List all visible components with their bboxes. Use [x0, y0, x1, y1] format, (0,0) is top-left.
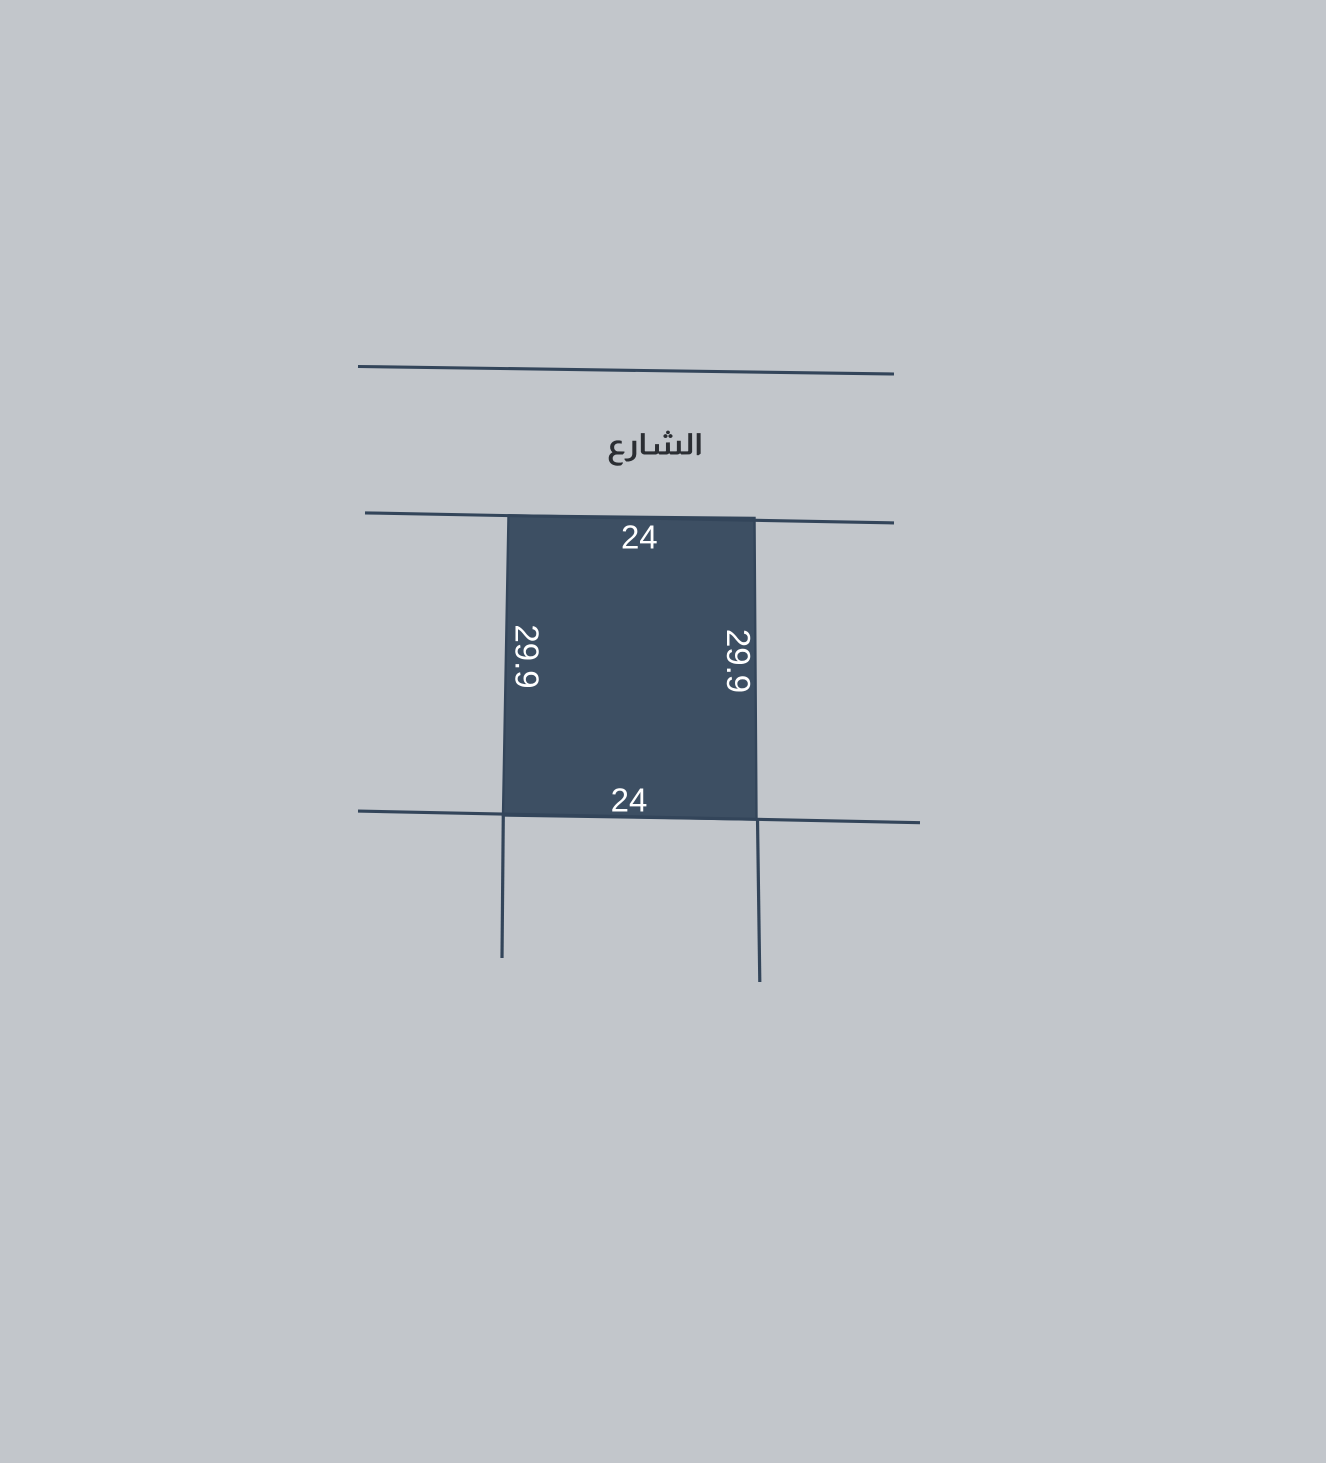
svg-text:29.9: 29.9	[720, 629, 757, 693]
svg-text:24: 24	[621, 518, 658, 555]
svg-text:29.9: 29.9	[508, 624, 545, 688]
svg-text:24: 24	[611, 782, 648, 819]
